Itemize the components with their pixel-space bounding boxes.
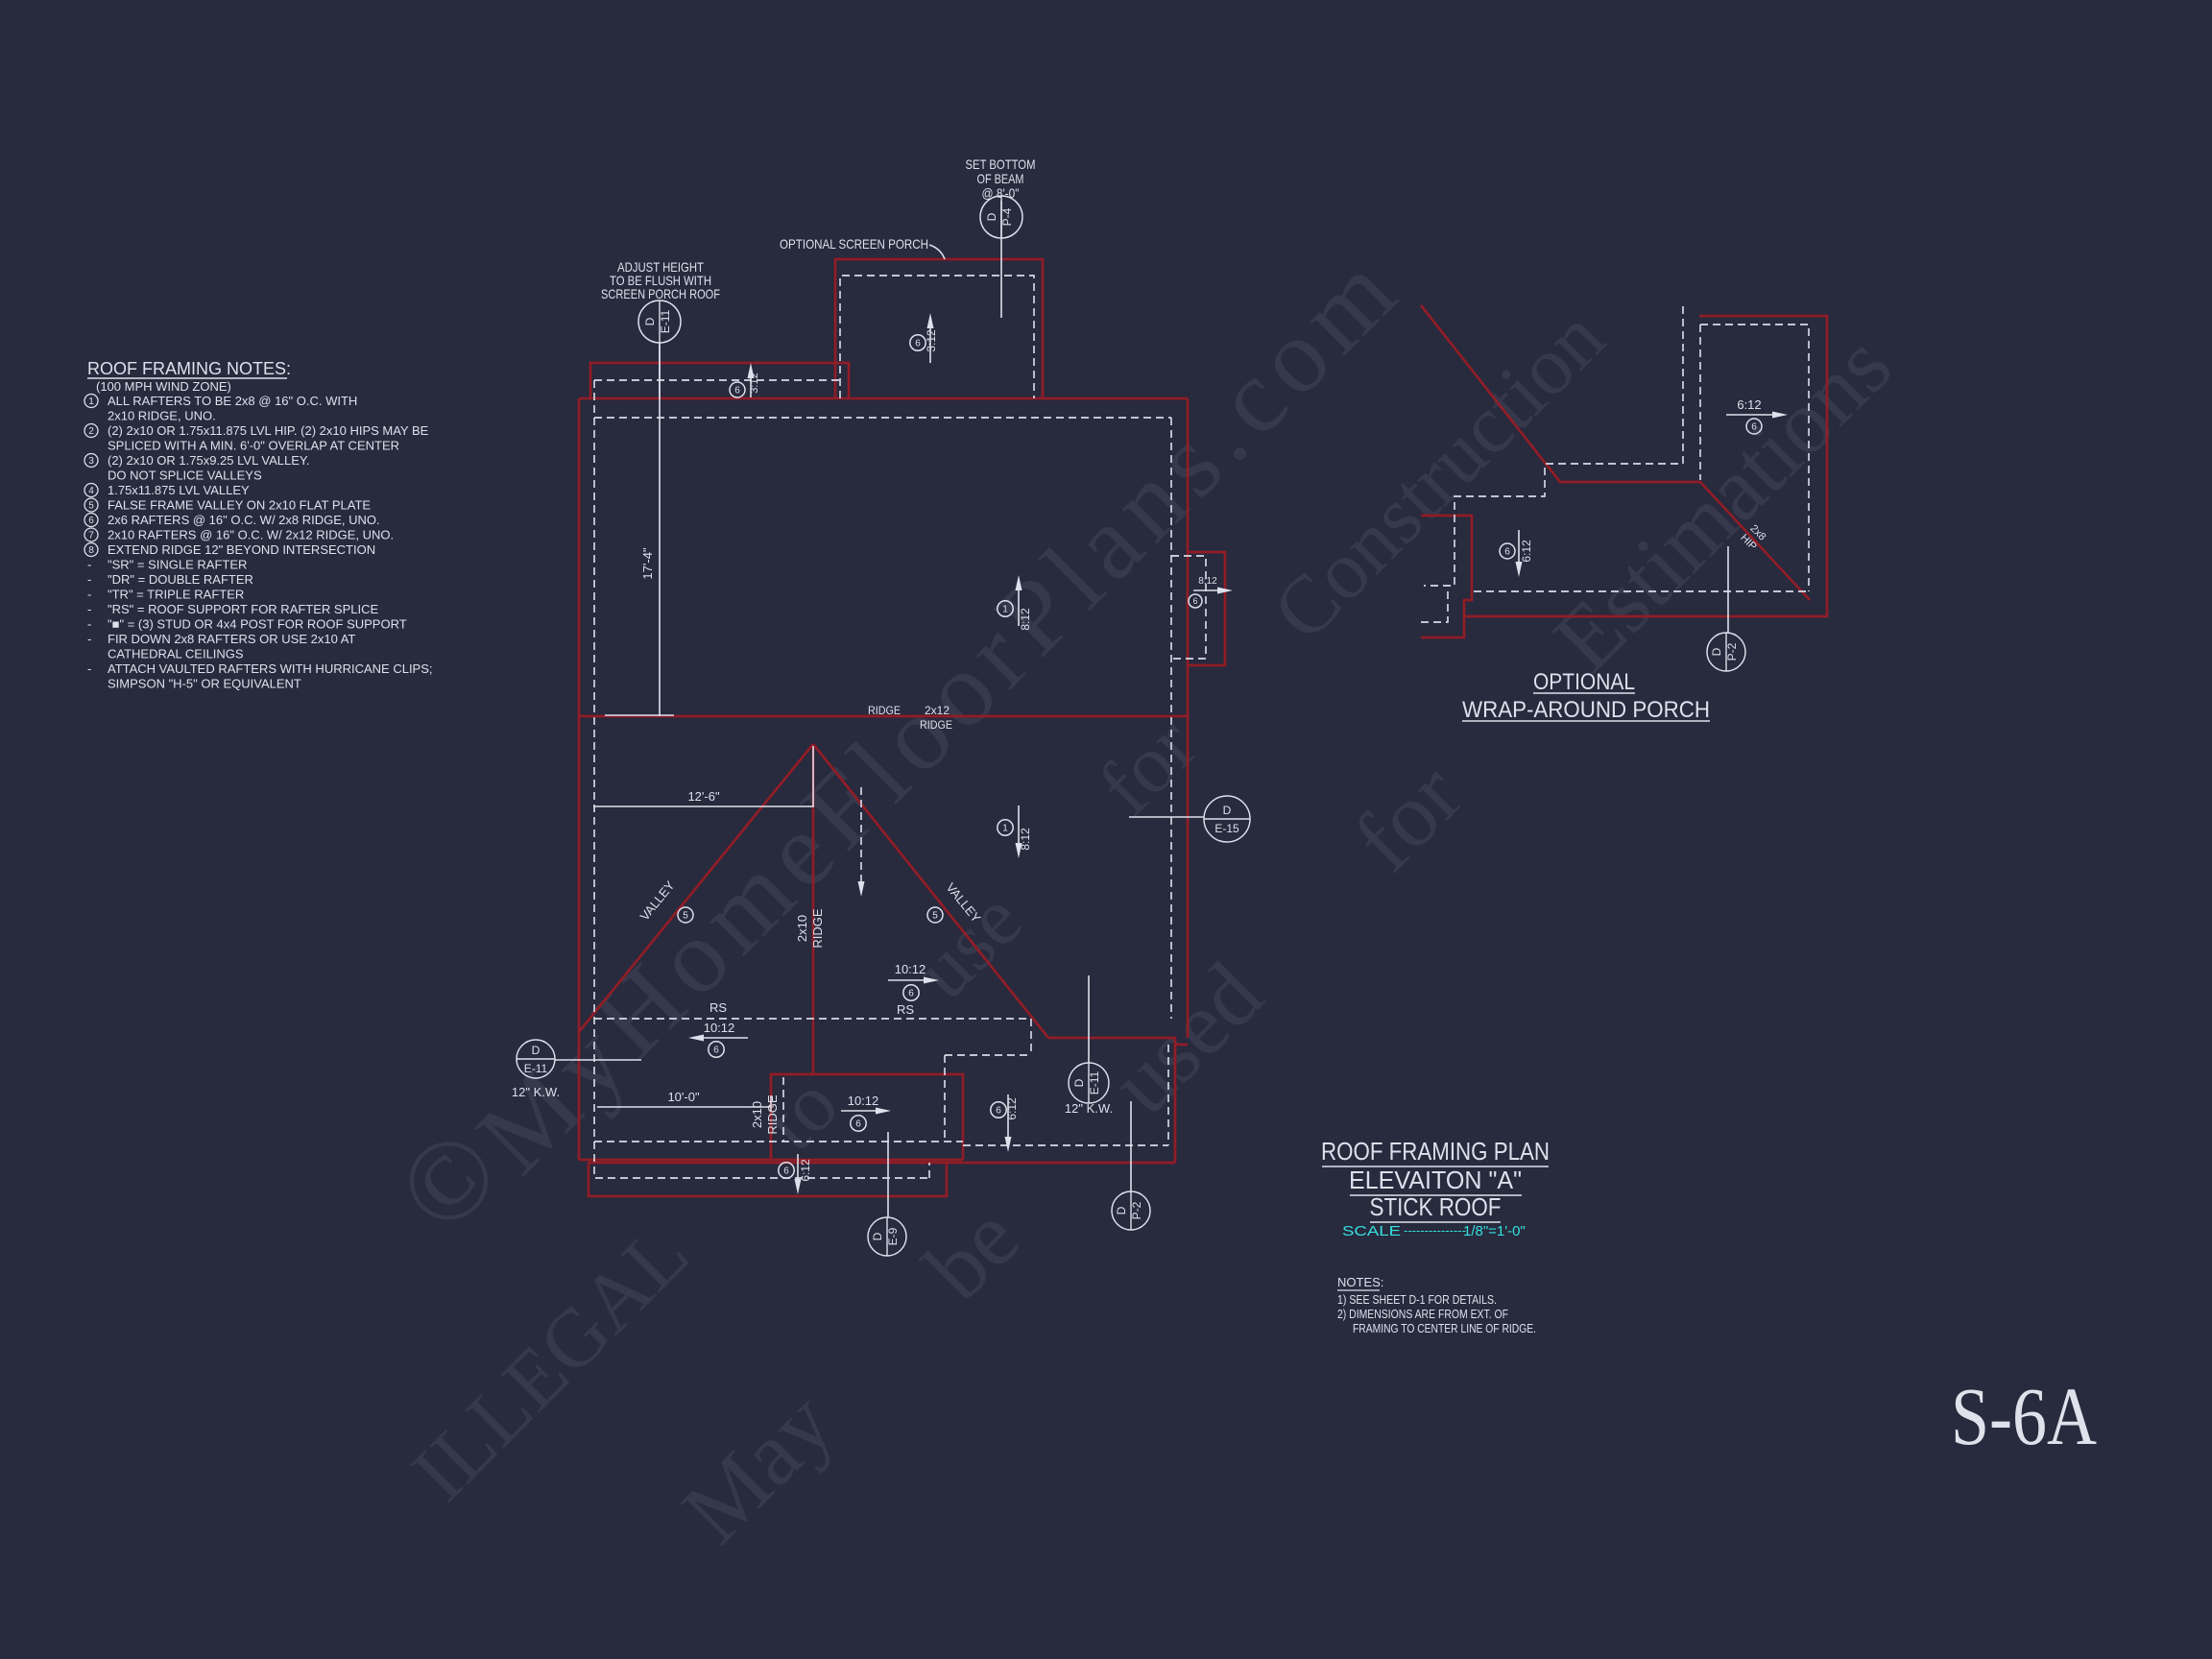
svg-text:"SR" = SINGLE RAFTER: "SR" = SINGLE RAFTER [108,558,247,572]
svg-text:D: D [1115,1206,1128,1214]
svg-text:SIMPSON "H-5" OR EQUIVALENT: SIMPSON "H-5" OR EQUIVALENT [108,677,301,691]
svg-text:D: D [1072,1078,1086,1087]
svg-text:2x12: 2x12 [925,704,950,717]
svg-text:D: D [871,1232,884,1240]
svg-text:D: D [985,212,998,221]
svg-text:5: 5 [683,911,688,922]
svg-text:NOTES:: NOTES: [1337,1275,1383,1289]
svg-text:RIDGE: RIDGE [810,908,825,949]
svg-text:3:12: 3:12 [749,373,760,393]
svg-text:1: 1 [88,397,94,407]
svg-text:2x10 RIDGE, UNO.: 2x10 RIDGE, UNO. [108,409,216,423]
svg-text:"DR" = DOUBLE RAFTER: "DR" = DOUBLE RAFTER [108,572,253,587]
svg-text:E-15: E-15 [1214,822,1239,835]
svg-text:-: - [87,602,91,616]
svg-text:ROOF FRAMING PLAN: ROOF FRAMING PLAN [1321,1137,1550,1166]
svg-text:---------------: --------------- [1404,1223,1466,1238]
svg-text:12" K.W.: 12" K.W. [1065,1101,1113,1116]
svg-text:ELEVAITON "A": ELEVAITON "A" [1349,1166,1522,1194]
svg-text:1.75x11.875 LVL VALLEY: 1.75x11.875 LVL VALLEY [108,483,250,497]
svg-text:RIDGE: RIDGE [765,1094,780,1135]
svg-text:P-4: P-4 [1000,207,1014,226]
svg-text:D: D [643,317,657,325]
svg-text:-: - [87,632,91,646]
svg-text:ROOF FRAMING NOTES:: ROOF FRAMING NOTES: [87,359,291,378]
svg-text:"TR" = TRIPLE RAFTER: "TR" = TRIPLE RAFTER [108,588,244,602]
svg-text:2) DIMENSIONS ARE FROM EXT. O: 2) DIMENSIONS ARE FROM EXT. OF [1337,1307,1508,1321]
svg-text:2x10: 2x10 [750,1101,764,1128]
svg-text:FALSE FRAME VALLEY ON 2x10 FLA: FALSE FRAME VALLEY ON 2x10 FLAT PLATE [108,498,371,513]
svg-text:DO NOT SPLICE VALLEYS: DO NOT SPLICE VALLEYS [108,469,262,483]
svg-text:-: - [87,572,91,587]
svg-text:6: 6 [783,1166,789,1177]
svg-text:"■" = (3) STUD OR 4x4 POST: "■" = (3) STUD OR 4x4 POST FOR ROOF SUPP… [108,617,407,632]
svg-text:8:12: 8:12 [1019,828,1032,851]
svg-text:D: D [532,1044,541,1057]
svg-text:8: 8 [88,545,94,556]
svg-text:10'-0": 10'-0" [667,1090,700,1104]
svg-text:RIDGE: RIDGE [920,718,952,732]
svg-text:-: - [87,588,91,602]
svg-text:@ 8'-0": @ 8'-0" [982,185,1020,201]
svg-text:(2) 2x10 OR 1.75x9.25 LVL VALL: (2) 2x10 OR 1.75x9.25 LVL VALLEY. [108,453,310,468]
svg-text:P-2: P-2 [1130,1201,1143,1219]
svg-text:3: 3 [88,456,94,467]
svg-text:OPTIONAL: OPTIONAL [1533,669,1635,695]
svg-text:D: D [1710,647,1723,656]
svg-text:OF BEAM: OF BEAM [977,171,1024,186]
svg-text:ALL RAFTERS TO BE 2x8 @ 16" O.: ALL RAFTERS TO BE 2x8 @ 16" O.C. WITH [108,394,357,408]
svg-text:12'-6": 12'-6" [687,789,720,804]
svg-text:SET BOTTOM: SET BOTTOM [966,156,1036,172]
svg-text:1/8"=1'-0": 1/8"=1'-0" [1463,1223,1526,1239]
svg-text:FIR DOWN 2x8 RAFTERS OR USE 2x: FIR DOWN 2x8 RAFTERS OR USE 2x10 AT [108,632,355,646]
svg-text:6:12: 6:12 [1737,397,1761,412]
svg-text:RS: RS [709,1000,727,1015]
svg-text:8:12: 8:12 [1198,576,1217,587]
svg-text:E-11: E-11 [524,1062,548,1075]
svg-text:6: 6 [996,1106,1001,1117]
svg-text:10:12: 10:12 [848,1094,879,1108]
svg-text:6:12: 6:12 [1520,540,1533,563]
svg-text:2x6 RAFTERS @ 16" O.C. W/ 2x8: 2x6 RAFTERS @ 16" O.C. W/ 2x8 RIDGE, UNO… [108,513,380,527]
svg-text:8:12: 8:12 [1019,608,1032,631]
svg-text:6: 6 [1192,596,1197,606]
svg-text:5: 5 [932,911,938,922]
svg-text:STICK ROOF: STICK ROOF [1370,1192,1502,1221]
svg-text:6: 6 [908,989,914,999]
svg-text:E-11: E-11 [1088,1070,1101,1094]
svg-text:1: 1 [1002,605,1008,615]
svg-text:RIDGE: RIDGE [868,704,901,717]
svg-text:6:12: 6:12 [799,1159,812,1182]
svg-text:6:12: 6:12 [1005,1097,1019,1120]
svg-text:-: - [87,558,91,572]
svg-text:CATHEDRAL CEILINGS: CATHEDRAL CEILINGS [108,647,244,661]
svg-text:17'-4": 17'-4" [640,547,655,580]
svg-text:"RS" = ROOF SUPPORT FOR RAFTE: "RS" = ROOF SUPPORT FOR RAFTER SPLICE [108,602,378,616]
svg-text:D: D [1223,804,1232,817]
svg-text:OPTIONAL SCREEN PORCH: OPTIONAL SCREEN PORCH [780,236,928,252]
svg-text:EXTEND RIDGE 12" BEYOND INTERS: EXTEND RIDGE 12" BEYOND INTERSECTION [108,542,375,557]
svg-text:1: 1 [1002,824,1008,834]
svg-text:-: - [87,661,91,676]
svg-text:FRAMING TO CENTER LINE OF RIDG: FRAMING TO CENTER LINE OF RIDGE. [1353,1321,1536,1335]
svg-text:7: 7 [88,531,94,541]
svg-text:12" K.W.: 12" K.W. [512,1085,560,1099]
svg-text:(2) 2x10 OR 1.75x11.875 LVL HI: (2) 2x10 OR 1.75x11.875 LVL HIP. (2) 2x1… [108,423,429,438]
svg-text:6: 6 [1751,422,1757,433]
svg-text:E-9: E-9 [886,1227,900,1245]
svg-text:WRAP-AROUND PORCH: WRAP-AROUND PORCH [1462,697,1710,723]
svg-text:6: 6 [915,339,921,349]
svg-text:6: 6 [1504,547,1510,558]
svg-text:SCALE: SCALE [1342,1223,1401,1239]
svg-text:S-6A: S-6A [1951,1370,2097,1462]
svg-text:E-11: E-11 [659,309,672,333]
svg-text:6: 6 [713,1046,719,1056]
svg-text:2: 2 [88,426,94,437]
svg-text:SPLICED WITH A MIN. 6'-0" OVER: SPLICED WITH A MIN. 6'-0" OVERLAP AT CEN… [108,439,399,453]
svg-text:5: 5 [88,501,94,512]
svg-text:SCREEN PORCH ROOF: SCREEN PORCH ROOF [601,286,720,301]
svg-text:10:12: 10:12 [704,1021,735,1035]
svg-text:RS: RS [897,1002,914,1017]
svg-text:1) SEE SHEET D-1 FOR DETAILS.: 1) SEE SHEET D-1 FOR DETAILS. [1337,1292,1497,1307]
svg-text:-: - [87,617,91,632]
svg-text:6: 6 [88,516,94,526]
svg-text:ATTACH VAULTED RAFTERS WITH HU: ATTACH VAULTED RAFTERS WITH HURRICANE CL… [108,661,433,676]
svg-text:P-2: P-2 [1725,642,1739,661]
svg-text:10:12: 10:12 [895,962,926,976]
svg-text:6: 6 [855,1119,861,1130]
svg-text:3:12: 3:12 [925,329,938,352]
svg-text:(100 MPH WIND ZONE): (100 MPH WIND ZONE) [96,379,231,394]
svg-text:2x10: 2x10 [795,915,809,942]
svg-text:4: 4 [88,486,94,496]
svg-text:2x10 RAFTERS @ 16" O.C. W/ 2x1: 2x10 RAFTERS @ 16" O.C. W/ 2x12 RIDGE, U… [108,528,394,542]
svg-text:6: 6 [734,386,740,397]
